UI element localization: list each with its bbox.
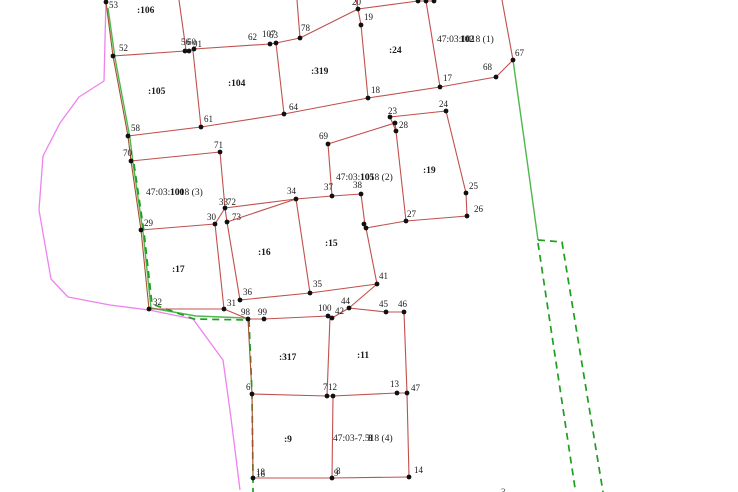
vertex-dot <box>444 109 449 114</box>
parcel-boundary-line <box>128 98 368 136</box>
vertex-dot <box>402 310 407 315</box>
parcel-number-label: :11 <box>357 351 369 361</box>
parcel-boundary-line <box>113 9 513 98</box>
vertex-label: 9 <box>334 468 339 478</box>
vertex-dot <box>139 228 144 233</box>
vertex-dot <box>464 191 469 196</box>
vertex-dot <box>294 197 299 202</box>
vertex-dot <box>330 194 335 199</box>
parcel-boundary-line <box>296 196 332 199</box>
vertex-label: 41 <box>379 271 388 281</box>
green-dashed-boundary-line <box>538 243 575 488</box>
parcel-boundary-line <box>297 0 300 38</box>
vertex-dot <box>225 220 230 225</box>
vertex-label: 13 <box>390 379 400 389</box>
vertex-label: 12 <box>328 382 337 392</box>
vertex-label: 78 <box>301 23 311 33</box>
vertex-label: 23 <box>388 106 398 116</box>
parcel-number-label: :19 <box>423 166 436 176</box>
green-dashed-boundary-line <box>538 240 603 492</box>
vertex-dot <box>416 0 421 3</box>
parcel-number-label: :106 <box>137 6 155 16</box>
vertex-dot <box>465 214 470 219</box>
vertex-dot <box>126 134 131 139</box>
vertex-label: 68 <box>483 62 493 72</box>
cadastral-quarter-label-overlay: 100 <box>170 188 185 198</box>
parcel-number-label: :15 <box>325 239 338 249</box>
cadastral-plan: 5352566091621076378201918176867586164707… <box>0 0 738 492</box>
parcel-boundary-line <box>248 319 253 478</box>
vertex-label: 6 <box>246 382 251 392</box>
vertex-dot <box>438 85 443 90</box>
vertex-dot <box>347 306 352 311</box>
parcel-boundary-line <box>328 123 395 144</box>
vertex-dot <box>394 129 399 134</box>
vertex-label: 24 <box>439 99 449 109</box>
vertex-dot <box>222 307 227 312</box>
magenta-boundary-line <box>39 0 240 490</box>
vertex-dot <box>218 150 223 155</box>
vertex-label: 29 <box>144 218 154 228</box>
vertex-label: 18 <box>371 85 381 95</box>
clipped-text-fragment: 3 <box>501 487 506 492</box>
vertex-label: 98 <box>241 307 251 317</box>
vertex-dot <box>187 49 192 54</box>
parcel-boundary-line <box>366 228 377 284</box>
vertex-label: 73 <box>232 212 242 222</box>
vertex-dot <box>404 219 409 224</box>
vertex-label: 58 <box>131 123 141 133</box>
vertex-label: 37 <box>324 182 334 192</box>
vertex-dot <box>356 7 361 12</box>
vertex-dot <box>384 310 389 315</box>
vertex-dot <box>250 392 255 397</box>
parcel-boundary-line <box>296 199 310 293</box>
parcel-number-label: :9 <box>284 435 292 445</box>
vertex-dot <box>359 23 364 28</box>
vertex-dot <box>407 475 412 480</box>
parcel-boundary-line <box>502 0 513 60</box>
cadastral-quarter-label-overlay: 102 <box>460 35 475 45</box>
vertex-label: 19 <box>364 12 374 22</box>
vertex-dot <box>251 476 256 481</box>
vertex-dot <box>424 0 429 3</box>
vertex-dot <box>432 0 437 3</box>
parcel-boundary-line <box>252 393 407 396</box>
parcel-boundary-line <box>193 51 201 127</box>
vertex-dot <box>282 112 287 117</box>
vertex-label: 64 <box>289 102 299 112</box>
vertex-label: 69 <box>319 131 329 141</box>
vertex-dot <box>298 36 303 41</box>
vertex-label: 61 <box>204 114 213 124</box>
parcel-number-label: :319 <box>311 67 329 77</box>
vertex-label: 20 <box>352 0 362 7</box>
vertex-label: 99 <box>258 307 268 317</box>
vertex-dot <box>104 0 109 4</box>
vertex-label: 100 <box>318 303 332 313</box>
vertex-dot <box>238 298 243 303</box>
vertex-dot <box>359 192 364 197</box>
parcel-number-label: :17 <box>172 265 185 275</box>
vertex-label: 26 <box>474 204 484 214</box>
vertex-label: 71 <box>214 140 223 150</box>
vertex-dot <box>199 125 204 130</box>
vertex-label: 42 <box>335 306 344 316</box>
vertex-dot <box>147 307 152 312</box>
vertex-dot <box>262 317 267 322</box>
vertex-dot <box>395 391 400 396</box>
vertex-label: 28 <box>399 120 409 130</box>
parcel-number-label: :16 <box>258 248 271 258</box>
vertex-label: 18 <box>256 467 266 477</box>
vertex-dot <box>330 316 335 321</box>
parcel-number-label: :24 <box>389 46 402 56</box>
vertex-label: 72 <box>227 197 236 207</box>
vertex-label: 52 <box>119 43 128 53</box>
vertex-label: 30 <box>207 212 217 222</box>
vertex-label: 63 <box>269 30 279 40</box>
vertex-dot <box>111 54 116 59</box>
vertex-label: 44 <box>341 296 351 306</box>
vertex-dot <box>246 317 251 322</box>
vertex-label: 70 <box>123 148 133 158</box>
vertex-label: 62 <box>248 32 257 42</box>
vertex-label: 25 <box>469 181 479 191</box>
parcel-number-label: :105 <box>148 87 166 97</box>
vertex-dot <box>393 121 398 126</box>
vertex-label: 36 <box>243 287 253 297</box>
vertex-label: 53 <box>109 0 119 10</box>
vertex-label: 31 <box>227 298 236 308</box>
vertex-dot <box>308 291 313 296</box>
vertex-label: 91 <box>193 39 202 49</box>
cadastral-quarter-label-overlay: 8 <box>368 434 373 444</box>
vertex-dot <box>129 159 134 164</box>
cadastral-quarter-label: 47:03-7.518 (4) <box>333 433 393 444</box>
parcel-boundaries-layer <box>105 0 513 478</box>
bottom-edge-fragments-layer: ..3 <box>455 486 506 492</box>
parcel-boundary-line <box>215 224 224 309</box>
vertex-label: 32 <box>153 297 162 307</box>
vertex-dots-layer <box>104 0 516 480</box>
parcel-boundary-line <box>276 43 284 114</box>
vertex-dot <box>364 226 369 231</box>
vertex-label: 34 <box>287 186 297 196</box>
vertex-dot <box>274 41 279 46</box>
parcel-boundary-line <box>407 393 409 477</box>
parcel-boundary-line <box>396 131 406 221</box>
vertex-dot <box>511 58 516 63</box>
vertex-dot <box>325 394 330 399</box>
vertex-dot <box>326 142 331 147</box>
vertex-label: 14 <box>414 465 424 475</box>
parcel-boundary-line <box>227 222 240 300</box>
vertex-dot <box>494 75 499 80</box>
vertex-dot <box>366 96 371 101</box>
vertex-label: 27 <box>407 209 417 219</box>
vertex-dot <box>331 394 336 399</box>
cadastral-quarter-label-overlay: 105 <box>360 173 375 183</box>
vertex-dot <box>405 391 410 396</box>
green-boundary-line <box>513 60 538 240</box>
vertex-label: 47 <box>411 383 421 393</box>
vertex-label: 67 <box>515 48 525 58</box>
parcel-boundary-line <box>404 312 407 393</box>
vertex-label: 17 <box>443 73 453 83</box>
vertex-dot <box>213 222 218 227</box>
clipped-text-fragment: .. <box>455 486 460 492</box>
parcel-boundary-line <box>358 1 434 9</box>
parcel-number-label: :104 <box>228 79 246 89</box>
cadastral-map-canvas: 5352566091621076378201918176867586164707… <box>0 0 738 492</box>
magenta-boundary-layer <box>39 0 240 490</box>
parcel-boundary-line <box>366 111 467 228</box>
vertex-dot <box>375 282 380 287</box>
vertex-label: 46 <box>398 299 408 309</box>
parcel-number-label: :317 <box>279 353 297 363</box>
vertex-label: 45 <box>379 299 389 309</box>
vertex-label: 35 <box>313 279 323 289</box>
vertex-dot <box>268 42 273 47</box>
